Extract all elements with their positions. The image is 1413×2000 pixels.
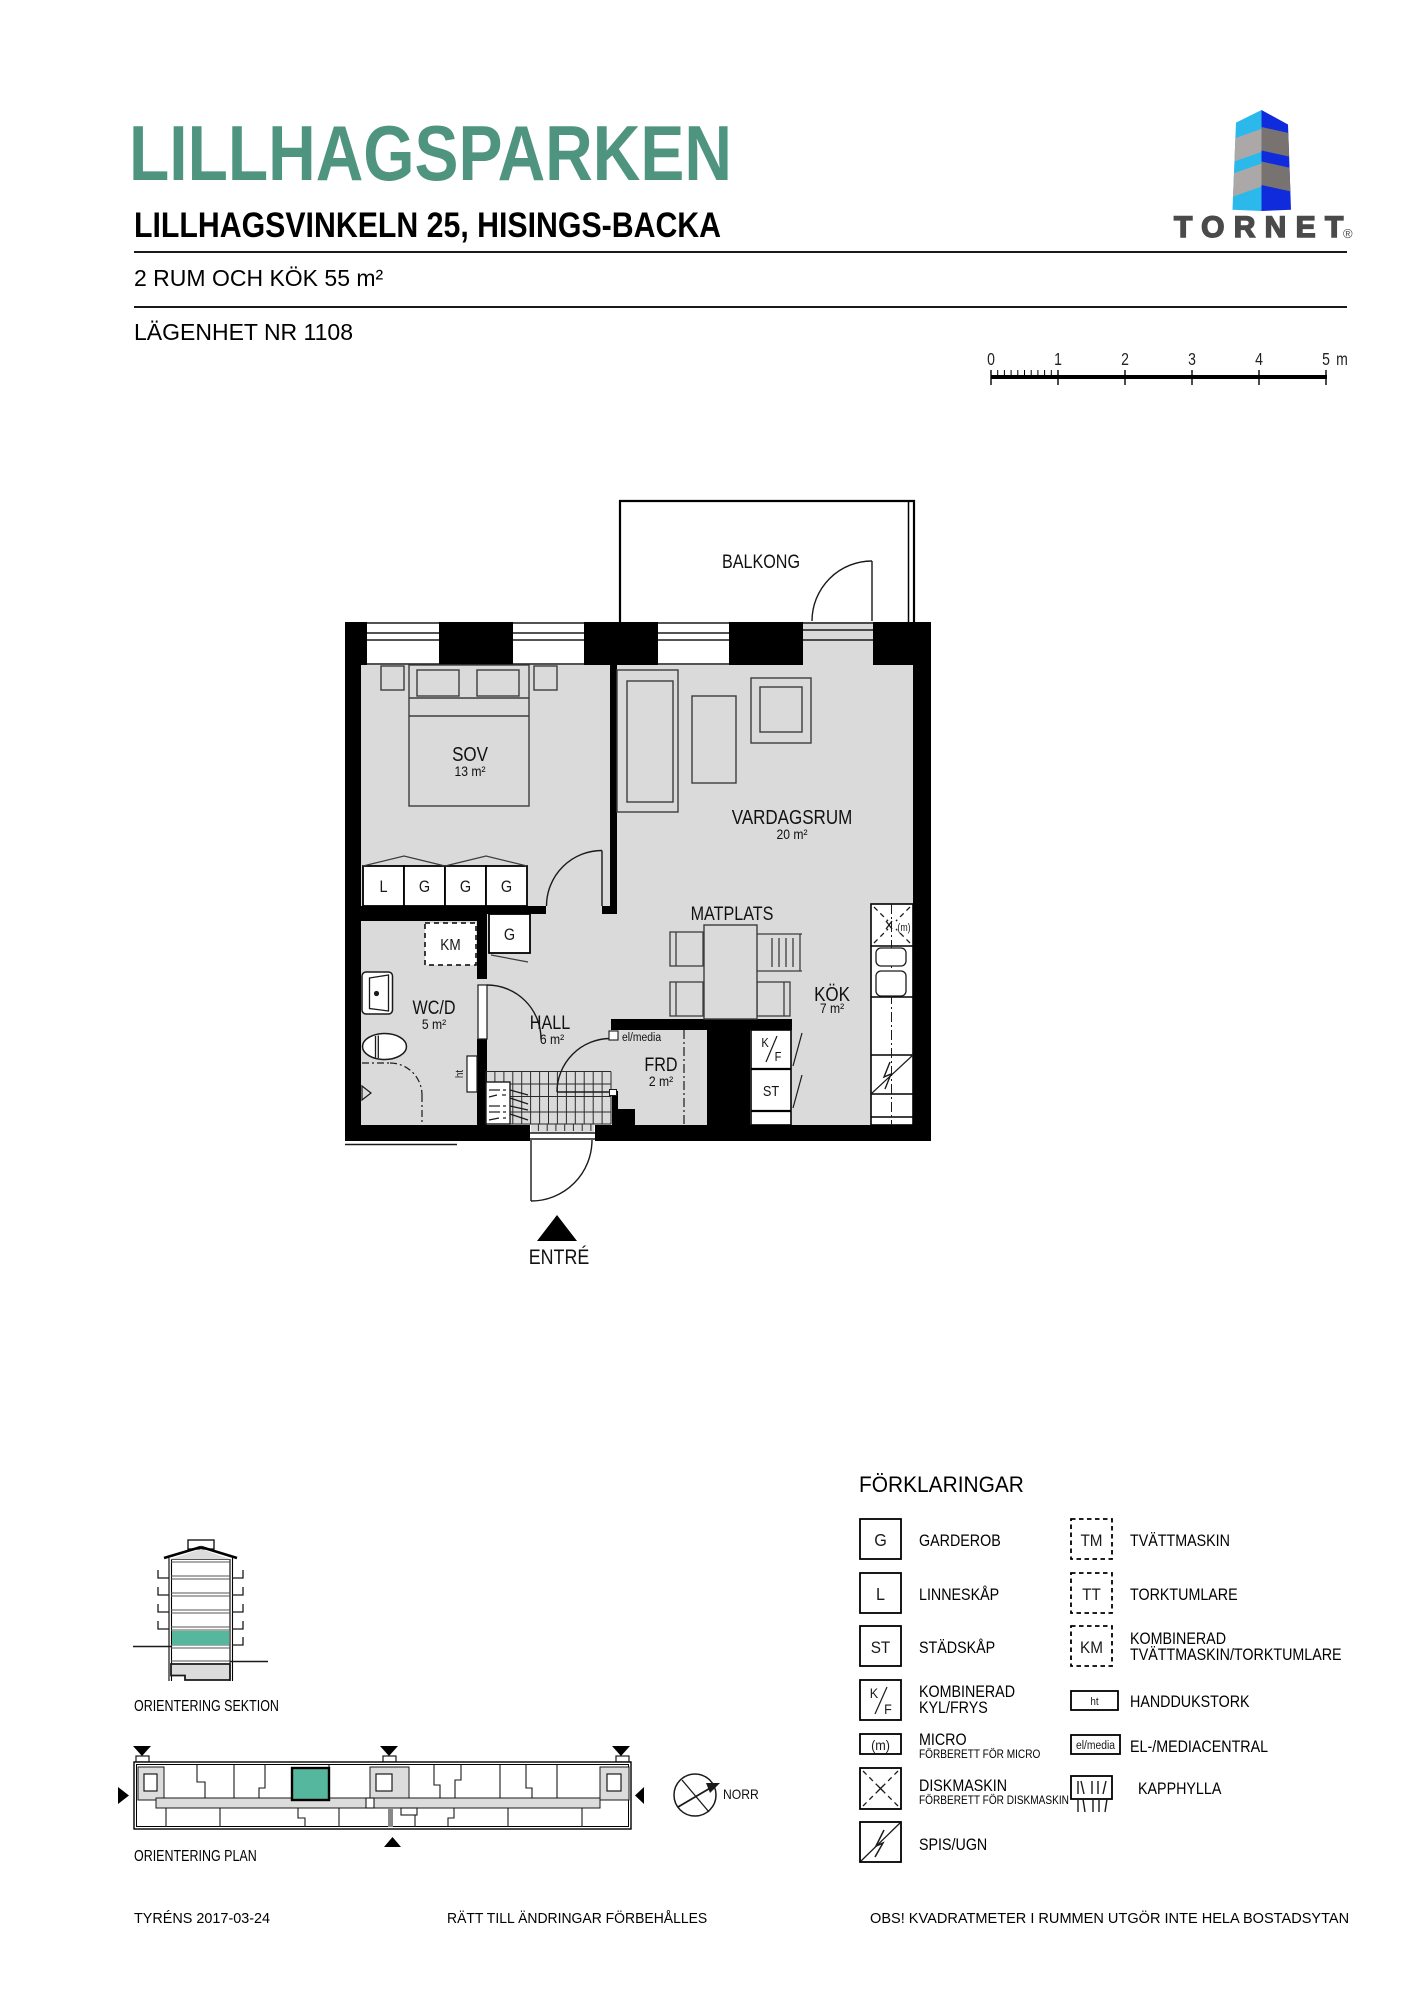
svg-text:NORR: NORR <box>723 1786 759 1802</box>
svg-text:2 m²: 2 m² <box>649 1073 674 1089</box>
svg-text:2: 2 <box>1121 349 1129 369</box>
svg-text:HALL: HALL <box>530 1012 571 1034</box>
svg-text:TM: TM <box>1080 1531 1102 1550</box>
svg-text:5: 5 <box>1322 349 1330 369</box>
svg-text:ht: ht <box>455 1070 467 1078</box>
svg-text:F: F <box>775 1049 782 1064</box>
svg-text:G: G <box>419 878 430 896</box>
svg-text:(m): (m) <box>871 1737 890 1753</box>
svg-text:13 m²: 13 m² <box>454 763 486 779</box>
svg-text:KM: KM <box>1080 1638 1103 1657</box>
svg-text:el/media: el/media <box>622 1032 662 1045</box>
svg-text:K: K <box>761 1035 768 1050</box>
svg-text:5 m²: 5 m² <box>422 1016 447 1032</box>
svg-text:G: G <box>460 878 471 896</box>
svg-text:L: L <box>876 1584 885 1604</box>
svg-text:TT: TT <box>1082 1585 1101 1604</box>
svg-text:ST: ST <box>871 1638 891 1657</box>
svg-text:ENTRÉ: ENTRÉ <box>529 1245 589 1270</box>
svg-text:4: 4 <box>1255 349 1263 369</box>
svg-text:K: K <box>870 1685 879 1701</box>
svg-text:F: F <box>884 1701 892 1717</box>
svg-text:(m): (m) <box>897 922 910 934</box>
svg-text:ST: ST <box>763 1082 780 1099</box>
svg-text:ht: ht <box>1090 1697 1098 1709</box>
svg-text:G: G <box>504 926 515 944</box>
svg-text:BALKONG: BALKONG <box>722 551 800 573</box>
svg-text:FRD: FRD <box>644 1054 677 1076</box>
svg-text:WC/D: WC/D <box>412 997 455 1019</box>
svg-text:KM: KM <box>440 937 460 954</box>
svg-text:TORNET: TORNET <box>1174 211 1353 244</box>
svg-text:G: G <box>501 878 512 896</box>
svg-text:1: 1 <box>1054 349 1062 369</box>
svg-text:®: ® <box>1343 226 1353 241</box>
svg-text:7 m²: 7 m² <box>820 1000 845 1016</box>
svg-text:L: L <box>379 878 387 896</box>
svg-text:SOV: SOV <box>452 743 488 766</box>
svg-text:m: m <box>1336 349 1348 369</box>
svg-text:20 m²: 20 m² <box>776 826 808 842</box>
svg-text:0: 0 <box>987 349 995 369</box>
svg-text:3: 3 <box>1188 349 1196 369</box>
svg-text:6 m²: 6 m² <box>540 1031 565 1047</box>
svg-text:VARDAGSRUM: VARDAGSRUM <box>732 806 852 829</box>
svg-text:el/media: el/media <box>1076 1740 1116 1753</box>
svg-text:G: G <box>874 1530 887 1550</box>
svg-text:MATPLATS: MATPLATS <box>691 903 774 925</box>
